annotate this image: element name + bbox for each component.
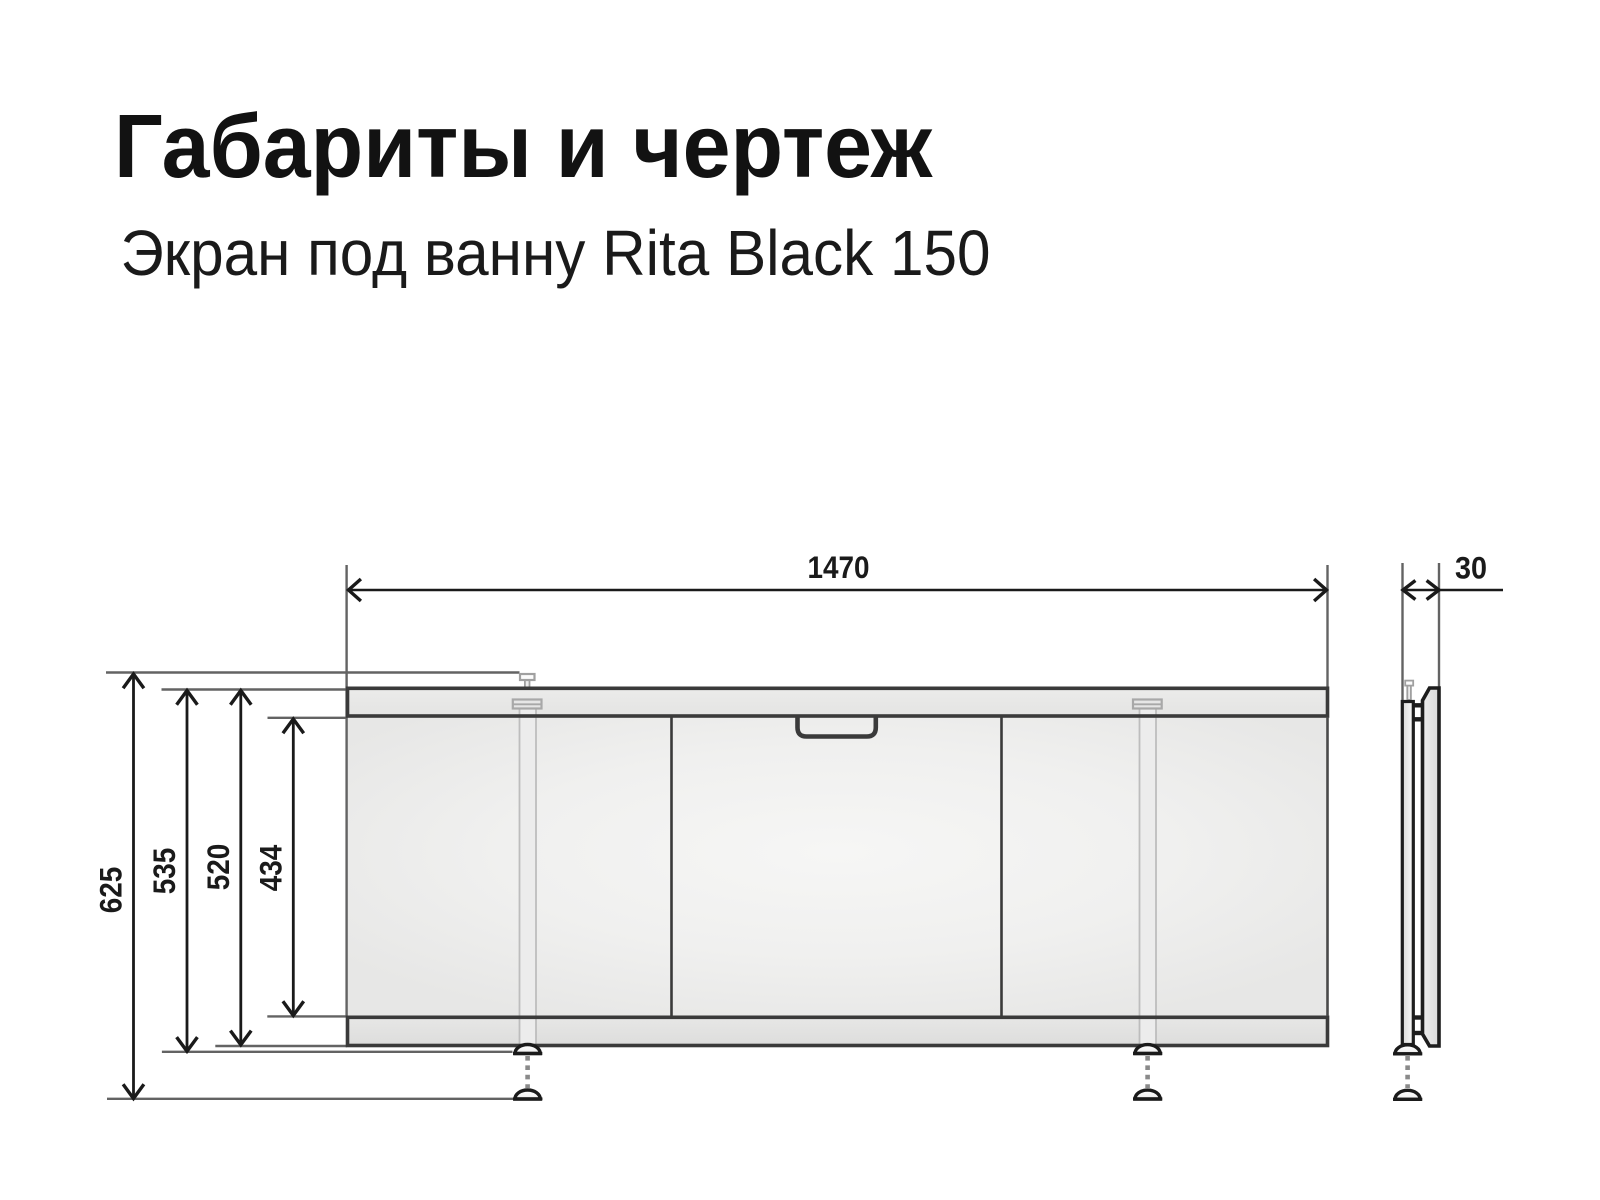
svg-text:Габариты и чертеж: Габариты и чертеж <box>114 97 933 197</box>
svg-text:Экран под ванну Rita Black 150: Экран под ванну Rita Black 150 <box>121 217 991 289</box>
svg-text:520: 520 <box>200 844 236 891</box>
svg-text:434: 434 <box>253 844 289 891</box>
svg-text:1470: 1470 <box>808 549 870 585</box>
svg-text:625: 625 <box>93 867 129 914</box>
svg-text:30: 30 <box>1455 550 1487 586</box>
svg-text:535: 535 <box>146 848 182 895</box>
